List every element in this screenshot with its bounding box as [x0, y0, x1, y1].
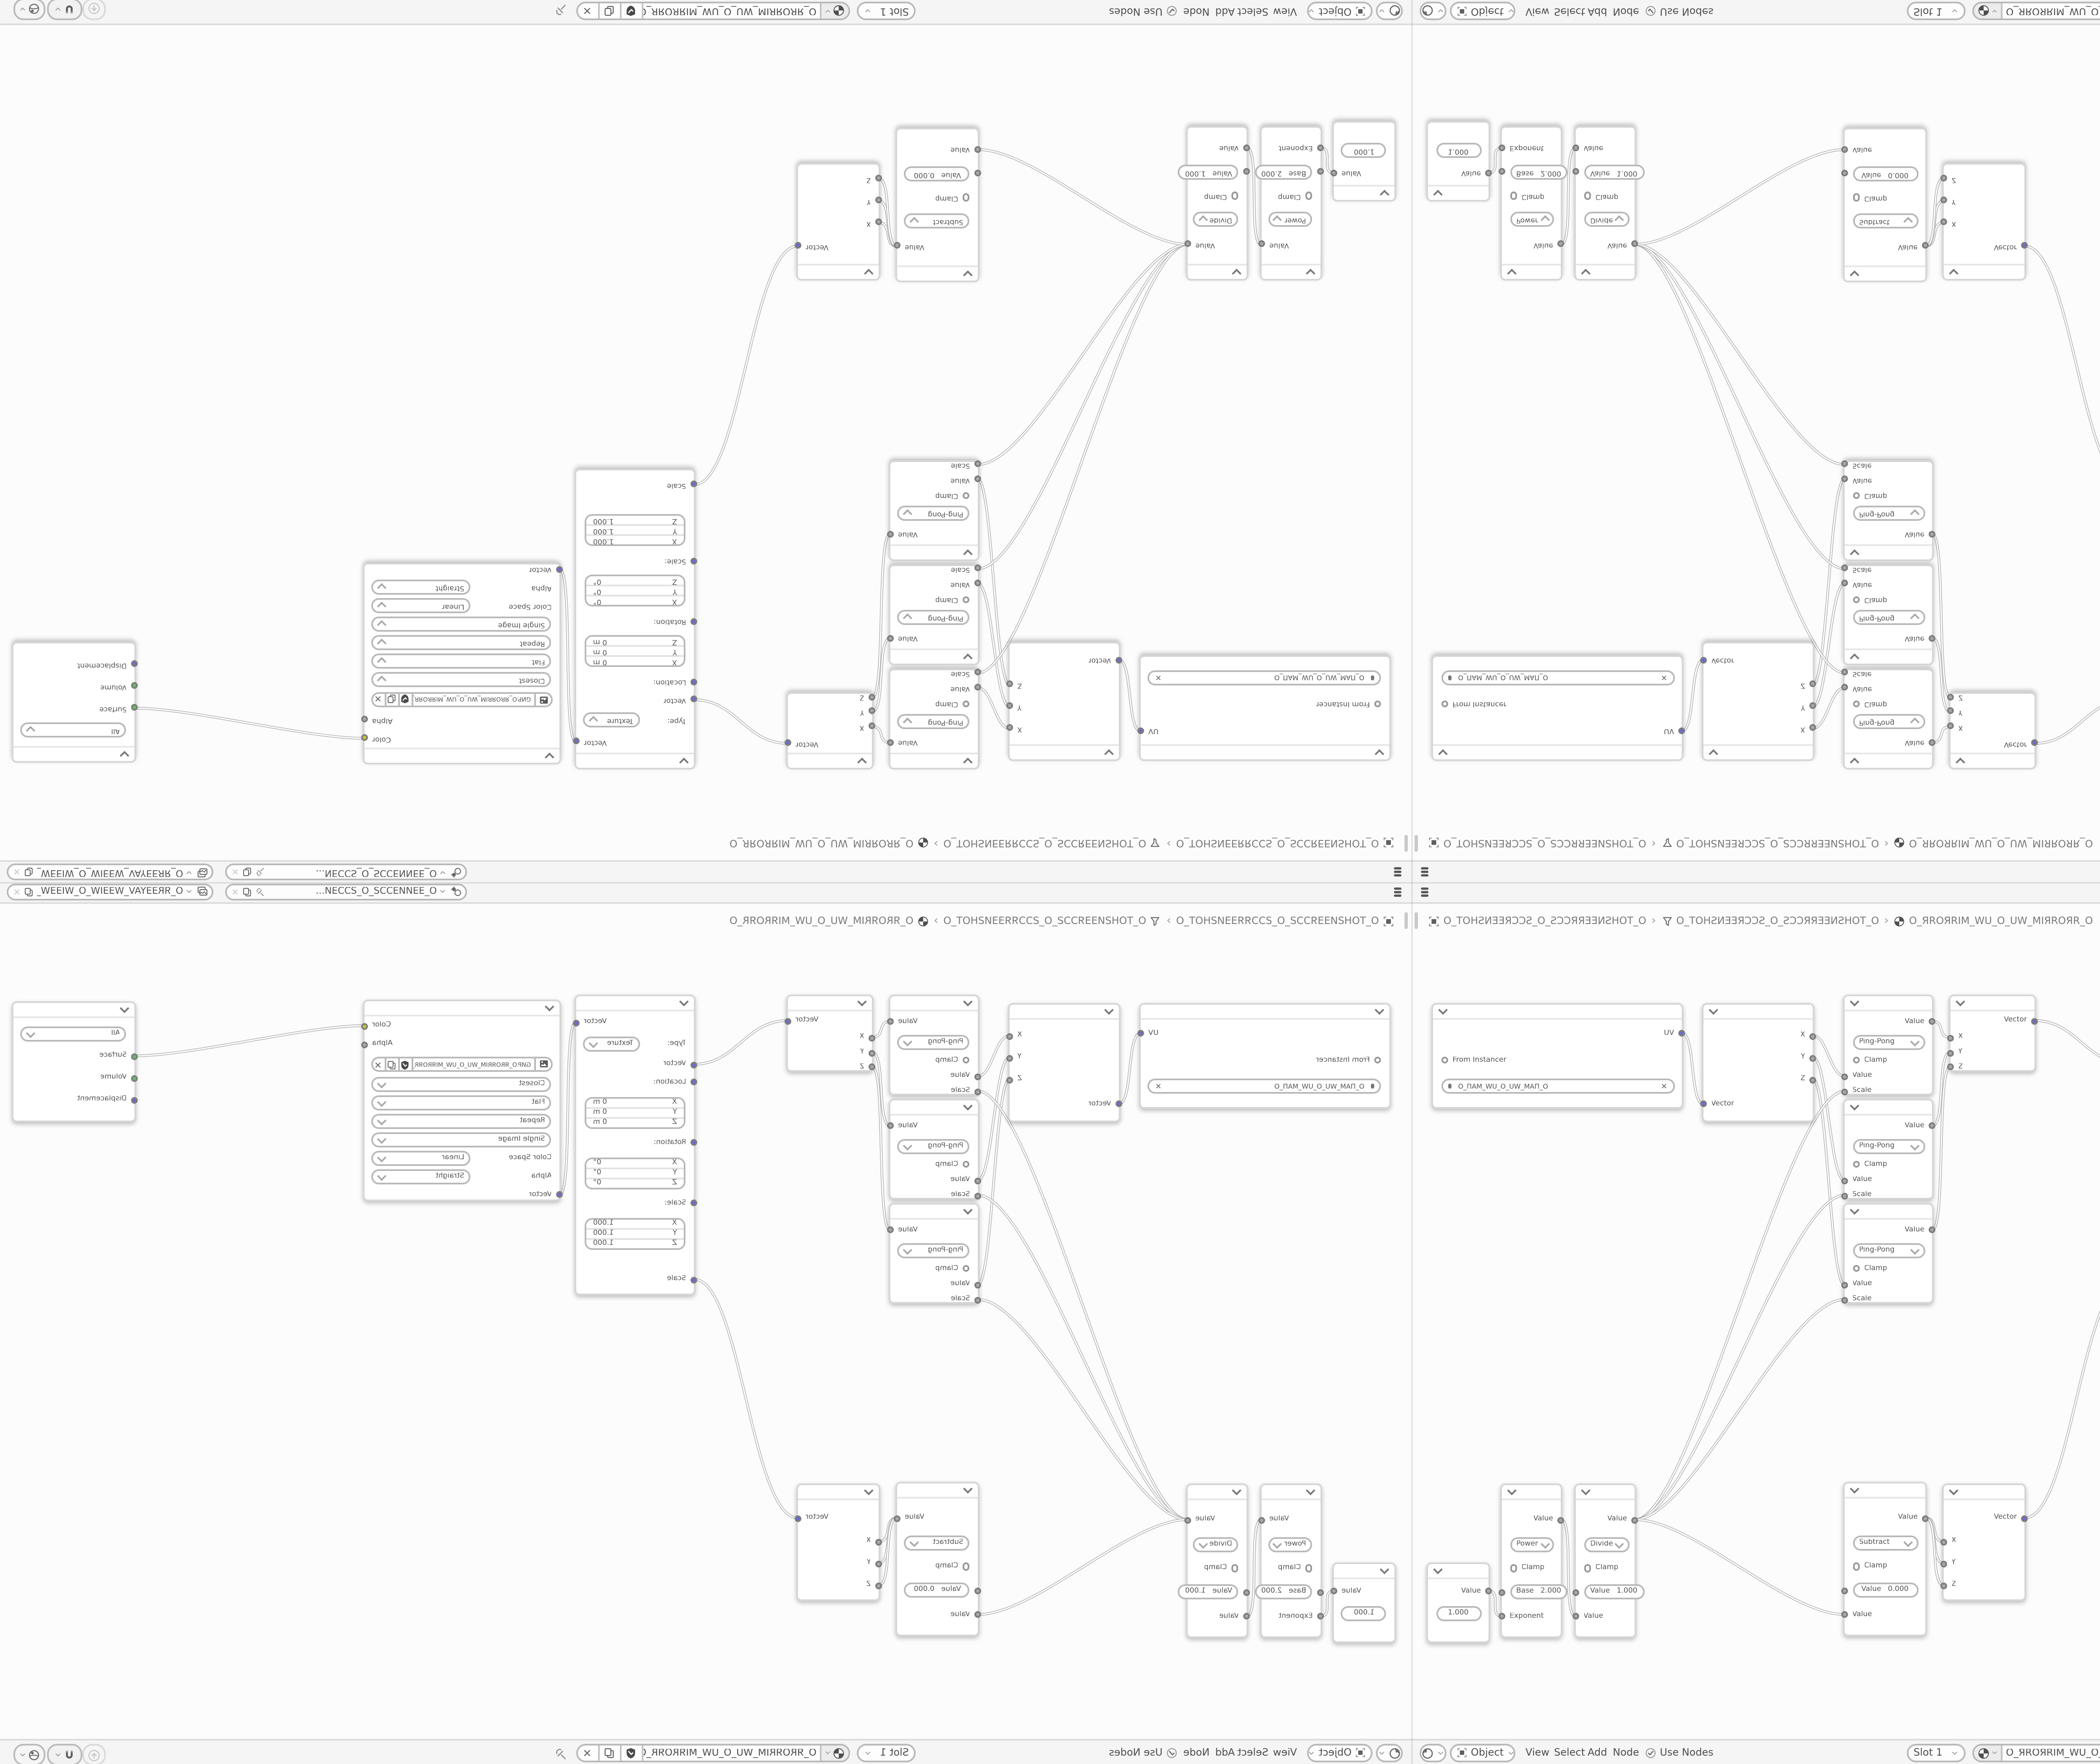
checkbox[interactable] — [1305, 1564, 1313, 1572]
node-pp3[interactable]: ValuePing-PongClampValueScale — [1843, 1203, 1934, 1304]
pow-exp-socket[interactable] — [1498, 144, 1505, 151]
vector-field-row[interactable]: X0 m — [586, 658, 684, 666]
x-icon[interactable] — [1659, 674, 1667, 682]
collapse-chevron-icon[interactable] — [1104, 748, 1114, 759]
vector-field-row[interactable]: Z0 m — [586, 1116, 684, 1126]
value-field[interactable]: Base2.000 — [1509, 165, 1568, 180]
node-header[interactable] — [1262, 1485, 1320, 1500]
breadcrumb-item[interactable]: O_TOHƧИƎƎЯƆƆƧ_O_ƧƆƆЯЯƎƎИƧHOT_O — [1661, 915, 1879, 927]
node-pp3[interactable]: ValuePing-PongClampValueScale — [889, 460, 979, 561]
dropdown[interactable]: Repeat — [372, 635, 552, 650]
use-nodes-toggle[interactable]: Use Nodes — [1109, 1740, 1178, 1764]
node-div[interactable]: ValueDivideClampValue1.000Value — [1186, 1483, 1248, 1638]
x-icon[interactable] — [1155, 674, 1163, 682]
node-out[interactable]: AllSurfaceVolumeDisplacement — [12, 1001, 136, 1122]
dropdown[interactable]: Ping-Pong — [1852, 715, 1924, 730]
node-header[interactable] — [1141, 744, 1389, 759]
image-name-field[interactable]: GИP.O_ЯROЯRIM_WU_O_UW_MIЯROЯR_O.PNG — [412, 1056, 534, 1072]
collapse-chevron-icon[interactable] — [963, 549, 973, 559]
checkbox[interactable] — [1852, 700, 1860, 708]
editor-type-button[interactable] — [1376, 2, 1403, 20]
pp1-out-socket[interactable] — [887, 1018, 893, 1025]
uvmap-uv-socket[interactable] — [1137, 1030, 1144, 1037]
chevron-down-icon[interactable] — [439, 868, 448, 877]
node-header[interactable] — [365, 1001, 559, 1016]
value-field[interactable]: Value0.000 — [1852, 1583, 1918, 1598]
breadcrumb-item[interactable]: O_ЯROЯRIM_WU_O_UW_MIЯROЯR_O — [1894, 837, 2093, 849]
val-out-socket[interactable] — [1330, 170, 1337, 176]
collapse-chevron-icon[interactable] — [1849, 549, 1860, 559]
shading-type-dropdown[interactable]: Object — [1450, 1744, 1515, 1762]
collapse-chevron-icon[interactable] — [1849, 757, 1860, 767]
image-datablock-icon-button[interactable] — [534, 692, 553, 708]
dropdown[interactable]: Divide — [1193, 1537, 1239, 1552]
collapse-chevron-icon[interactable] — [1379, 189, 1390, 199]
collapse-chevron-icon[interactable] — [857, 757, 867, 767]
collapse-chevron-icon[interactable] — [963, 270, 973, 280]
node-map[interactable]: VectorType:TextureVectorLocation:X0 mY0 … — [575, 469, 696, 769]
collapse-chevron-icon[interactable] — [963, 1101, 973, 1111]
breadcrumb-item[interactable]: O_ЯROЯRIM_WU_O_UW_MIЯROЯR_O — [730, 837, 929, 849]
node-img[interactable]: ColorAlphaGИP.O_ЯROЯRIM_WU_O_UW_MIЯROЯR_… — [363, 563, 561, 764]
value-field[interactable]: 1.000 — [1436, 1606, 1481, 1621]
dropdown[interactable]: Ping-Pong — [1852, 1138, 1924, 1153]
node-pp3[interactable]: ValuePing-PongClampValueScale — [889, 1203, 979, 1304]
uv-map-field[interactable]: O_ПAM_WU_O_UW_MAП_O — [1148, 670, 1382, 685]
node-header[interactable] — [1845, 753, 1932, 768]
material-slot-dropdown[interactable]: Slot 1 — [1907, 1744, 1966, 1762]
node-c2[interactable]: VectorXYZ — [796, 163, 880, 281]
vector-field-stack[interactable]: X0 mY0 mZ0 m — [585, 636, 685, 668]
breadcrumb-item[interactable]: O_TOHƧИƎƎЯƆƆƧ_O_ƧƆƆЯЯƎƎИƧHOT_O — [1428, 837, 1646, 849]
collapse-chevron-icon[interactable] — [1849, 1101, 1860, 1111]
node-header[interactable] — [1576, 264, 1635, 279]
sep-vector-socket[interactable] — [1700, 657, 1706, 664]
node-header[interactable] — [1334, 1564, 1394, 1579]
overlays-button[interactable] — [13, 1744, 45, 1764]
collapse-chevron-icon[interactable] — [1433, 1564, 1443, 1575]
image-name-field[interactable]: GИP.O_ЯROЯRIM_WU_O_UW_MIЯROЯR_O.PNG — [412, 692, 534, 708]
node-header[interactable] — [890, 1100, 978, 1116]
collapse-chevron-icon[interactable] — [1849, 653, 1860, 663]
node-header[interactable] — [1433, 744, 1682, 759]
dropdown[interactable]: Ping-Pong — [898, 611, 970, 626]
collapse-chevron-icon[interactable] — [544, 1002, 555, 1012]
dropdown[interactable]: Subtract — [1852, 213, 1918, 228]
dropdown[interactable]: Ping-Pong — [898, 507, 970, 522]
x-icon[interactable] — [1155, 1082, 1163, 1090]
breadcrumb-item[interactable]: O_ЯROЯRIM_WU_O_UW_MIЯROЯR_O — [730, 915, 929, 927]
node-header[interactable] — [890, 544, 978, 559]
node-c2[interactable]: VectorXYZ — [1942, 163, 2026, 281]
node-pp1[interactable]: ValuePing-PongClampValueScale — [1843, 995, 1934, 1095]
node-header[interactable] — [788, 753, 872, 768]
scene-selector[interactable]: O_ƎƎИИƎƆƆƧ_O_ƧƆƆƎИ... — [225, 864, 467, 880]
image-fake-user-button[interactable] — [398, 1056, 412, 1072]
vector-field-row[interactable]: Z0° — [586, 577, 684, 587]
dropdown[interactable]: Ping-Pong — [1852, 507, 1924, 522]
menu-view[interactable]: View — [1525, 1740, 1549, 1764]
collapse-chevron-icon[interactable] — [963, 997, 973, 1007]
dropdown[interactable]: Divide — [1193, 212, 1239, 227]
checkbox[interactable] — [963, 194, 970, 201]
checkbox[interactable] — [1509, 1564, 1517, 1572]
collapse-chevron-icon[interactable] — [1231, 268, 1242, 278]
collapse-chevron-icon[interactable] — [1849, 997, 1860, 1007]
node-header[interactable] — [576, 753, 694, 768]
checkbox[interactable] — [963, 700, 970, 708]
node-sep[interactable]: XYZVector — [1008, 642, 1121, 761]
checkbox[interactable] — [1441, 1056, 1448, 1064]
material-sphere-icon[interactable] — [1974, 1744, 2003, 1762]
material-copy-button[interactable] — [600, 2, 622, 20]
x-icon[interactable] — [12, 867, 22, 877]
collapse-chevron-icon[interactable] — [1438, 1005, 1448, 1016]
collapse-chevron-icon[interactable] — [1374, 748, 1385, 759]
pp2-out-socket[interactable] — [887, 635, 893, 642]
material-slot-dropdown[interactable]: Slot 1 — [857, 2, 916, 20]
collapse-chevron-icon[interactable] — [963, 653, 973, 663]
collapse-chevron-icon[interactable] — [963, 1205, 973, 1215]
node-editor-canvas[interactable]: O_TOHƧИƎƎЯƆƆƧ_O_ƧƆƆЯЯƎƎИƧHOT_O›O_TOHƧИƎƎ… — [0, 25, 1411, 862]
value-field[interactable]: 1.000 — [1341, 1606, 1387, 1621]
value-field[interactable]: Base2.000 — [1509, 1584, 1568, 1599]
node-header[interactable] — [1704, 744, 1813, 759]
checkbox[interactable] — [1583, 1564, 1591, 1572]
menu-view[interactable]: View — [1273, 1740, 1297, 1764]
collapse-chevron-icon[interactable] — [1374, 1005, 1385, 1016]
node-header[interactable] — [1845, 1100, 1932, 1116]
topbar-menu-button[interactable] — [1420, 864, 1435, 879]
vector-field-stack[interactable]: X1.000Y1.000Z1.000 — [585, 515, 685, 547]
node-val[interactable]: Value1.000 — [1426, 121, 1490, 202]
node-header[interactable] — [1433, 1005, 1682, 1020]
node-header[interactable] — [1704, 1005, 1813, 1020]
uv-map-field[interactable]: O_ПAM_WU_O_UW_MAП_O — [1148, 1079, 1382, 1094]
menu-add[interactable]: Add — [1588, 1740, 1607, 1764]
dropdown[interactable]: Straight — [372, 580, 471, 594]
node-out[interactable]: AllSurfaceVolumeDisplacement — [12, 642, 136, 763]
dropdown[interactable]: Subtract — [905, 1536, 970, 1551]
shading-type-dropdown[interactable]: Object — [1450, 2, 1515, 20]
image-unlink-button[interactable] — [371, 692, 385, 708]
checkbox[interactable] — [1374, 700, 1382, 708]
collapse-chevron-icon[interactable] — [1849, 1205, 1860, 1215]
node-img[interactable]: ColorAlphaGИP.O_ЯROЯRIM_WU_O_UW_MIЯROЯR_… — [363, 1000, 561, 1201]
vector-field-stack[interactable]: X0°Y0°Z0° — [585, 1157, 685, 1189]
node-sub[interactable]: ValueSubtractClampValue0.000Value — [895, 1482, 979, 1636]
vector-field-row[interactable]: X1.000 — [586, 1219, 684, 1227]
copy-icon[interactable] — [243, 867, 253, 877]
menu-node[interactable]: Node — [1613, 0, 1639, 24]
vector-field-row[interactable]: Y1.000 — [586, 527, 684, 537]
breadcrumb-item[interactable]: O_TOHƧИƎƎЯƆƆƧ_O_ƧƆƆЯЯƎƎИƧHOT_O — [1428, 915, 1646, 927]
node-header[interactable] — [1188, 1485, 1247, 1500]
editor-type-button[interactable] — [1376, 1744, 1403, 1762]
menu-node[interactable]: Node — [1183, 1740, 1210, 1764]
image-fake-user-button[interactable] — [398, 692, 412, 708]
node-c1[interactable]: VectorXYZ — [786, 995, 874, 1072]
pp1-out-socket[interactable] — [887, 739, 893, 746]
breadcrumb-item[interactable]: O_TOHƧИƎƎЯƆƆƧ_O_ƧƆƆЯЯƎƎИƧHOT_O — [1176, 837, 1394, 849]
use-nodes-toggle[interactable]: Use Nodes — [1645, 0, 1714, 24]
collapse-chevron-icon[interactable] — [544, 752, 555, 762]
vector-field-row[interactable]: Z1.000 — [586, 517, 684, 527]
checkbox[interactable] — [1852, 1265, 1860, 1272]
node-header[interactable] — [1334, 185, 1394, 200]
node-sep[interactable]: XYZVector — [1008, 1003, 1121, 1122]
node-header[interactable] — [1944, 264, 2024, 279]
node-header[interactable] — [1576, 1485, 1635, 1500]
dropdown[interactable]: Texture — [584, 1037, 640, 1052]
div-value-socket[interactable] — [1572, 1613, 1579, 1620]
material-datablock-selector[interactable]: O_ЯROЯRIM_WU_O_UW_MIЯROЯR_O — [576, 1744, 850, 1762]
dropdown[interactable]: Subtract — [905, 213, 970, 228]
dropdown[interactable]: Ping-Pong — [898, 1242, 970, 1257]
material-fake-user-button[interactable] — [622, 2, 643, 20]
checkbox[interactable] — [963, 492, 970, 499]
node-header[interactable] — [890, 648, 978, 664]
value-field[interactable]: 1.000 — [1341, 143, 1387, 158]
snapping-button[interactable] — [47, 0, 82, 20]
vector-field-row[interactable]: Z0° — [586, 1177, 684, 1187]
image-datablock-icon-button[interactable] — [534, 1056, 553, 1072]
c1-z-socket[interactable] — [1947, 694, 1953, 701]
collapse-chevron-icon[interactable] — [857, 997, 867, 1007]
collapse-chevron-icon[interactable] — [963, 757, 973, 767]
checkbox[interactable] — [963, 1056, 970, 1064]
collapse-chevron-icon[interactable] — [1849, 1484, 1860, 1494]
use-nodes-toggle[interactable]: Use Nodes — [1109, 0, 1178, 24]
node-uvmap[interactable]: UVFrom InstancerO_ПAM_WU_O_UW_MAП_O — [1139, 655, 1391, 761]
dropdown[interactable]: Power — [1509, 1537, 1554, 1552]
node-sep[interactable]: XYZVector — [1702, 1003, 1814, 1122]
collapse-chevron-icon[interactable] — [679, 997, 689, 1007]
material-sphere-icon[interactable] — [1974, 2, 2003, 20]
dropdown[interactable]: Ping-Pong — [1852, 1034, 1924, 1049]
pin-icon[interactable] — [255, 867, 265, 877]
node-header[interactable] — [13, 1003, 134, 1018]
checkbox[interactable] — [963, 596, 970, 604]
editor-corner-handle[interactable] — [1404, 912, 1408, 929]
view-layer-selector[interactable]: O_ЯRƎƎYAV_WƎƎIW_O_WIƎƎW_VAYƎƎЯR_O — [7, 864, 213, 880]
menu-add[interactable]: Add — [1588, 0, 1607, 24]
node-pp2[interactable]: ValuePing-PongClampValueScale — [889, 1099, 979, 1200]
breadcrumb-item[interactable]: O_TOHƧИƎƎЯƆƆƧ_O_ƧƆƆЯЯƎƎИƧHOT_O — [943, 837, 1161, 849]
topbar-menu-button[interactable] — [1388, 864, 1403, 879]
dropdown[interactable]: Power — [1509, 212, 1554, 227]
dropdown[interactable]: Linear — [372, 1151, 471, 1165]
material-datablock-selector[interactable]: O_ЯROЯRIM_WU_O_UW_MIЯROЯR_O — [1972, 2, 2100, 20]
node-pow[interactable]: ValuePowerClampBase2.000Exponent — [1500, 1483, 1562, 1638]
value-field[interactable]: Value1.000 — [1179, 1584, 1239, 1599]
node-header[interactable] — [798, 264, 879, 279]
vector-field-row[interactable]: Y0° — [586, 587, 684, 597]
node-pow[interactable]: ValuePowerClampBase2.000Exponent — [1260, 1483, 1322, 1638]
vector-field-row[interactable]: Y0 m — [586, 1106, 684, 1116]
snapping-button[interactable] — [47, 1744, 82, 1764]
collapse-chevron-icon[interactable] — [1104, 1005, 1114, 1016]
checkbox[interactable] — [963, 1160, 970, 1168]
collapse-chevron-icon[interactable] — [864, 268, 874, 278]
checkbox[interactable] — [1852, 596, 1860, 604]
node-pow[interactable]: ValuePowerClampBase2.000Exponent — [1260, 126, 1322, 281]
dropdown[interactable]: Repeat — [372, 1114, 552, 1129]
pin-id-button[interactable] — [554, 1740, 568, 1764]
vector-field-stack[interactable]: X0 mY0 mZ0 m — [585, 1096, 685, 1128]
node-pp3[interactable]: ValuePing-PongClampValueScale — [1843, 460, 1934, 561]
chevron-down-icon[interactable] — [186, 868, 194, 877]
menu-select[interactable]: Select — [1237, 1740, 1268, 1764]
collapse-chevron-icon[interactable] — [1379, 1564, 1390, 1575]
editor-corner-handle[interactable] — [1415, 912, 1418, 929]
vector-field-stack[interactable]: X1.000Y1.000Z1.000 — [585, 1217, 685, 1249]
value-field[interactable]: Value1.000 — [1179, 165, 1239, 180]
node-val[interactable]: Value1.000 — [1332, 1562, 1396, 1643]
node-pp2[interactable]: ValuePing-PongClampValueScale — [1843, 1099, 1934, 1200]
collapse-chevron-icon[interactable] — [1231, 1486, 1242, 1496]
checkbox[interactable] — [1852, 1056, 1860, 1064]
dropdown[interactable]: Straight — [372, 1169, 471, 1184]
collapse-chevron-icon[interactable] — [1580, 268, 1591, 278]
dropdown[interactable]: All — [21, 1026, 127, 1041]
node-header[interactable] — [1950, 996, 2034, 1011]
menu-add[interactable]: Add — [1215, 1740, 1235, 1764]
overlays-button[interactable] — [13, 0, 45, 20]
node-header[interactable] — [13, 746, 134, 761]
pin-id-button[interactable] — [554, 0, 568, 24]
node-c1[interactable]: VectorXYZ — [1949, 692, 2036, 769]
dropdown[interactable]: Closest — [372, 1077, 552, 1092]
dropdown[interactable]: Ping-Pong — [1852, 1242, 1924, 1257]
uv-map-field[interactable]: O_ПAM_WU_O_UW_MAП_O — [1441, 1079, 1674, 1094]
node-header[interactable] — [365, 748, 559, 763]
node-val[interactable]: Value1.000 — [1426, 1562, 1490, 1643]
node-header[interactable] — [576, 996, 694, 1011]
node-pow[interactable]: ValuePowerClampBase2.000Exponent — [1500, 126, 1562, 281]
material-slot-dropdown[interactable]: Slot 1 — [857, 1744, 916, 1762]
sub-value-socket[interactable] — [1841, 1611, 1848, 1618]
node-pp1[interactable]: ValuePing-PongClampValueScale — [889, 669, 979, 769]
collapse-chevron-icon[interactable] — [1580, 1486, 1591, 1496]
node-div[interactable]: ValueDivideClampValue1.000Value — [1574, 1483, 1636, 1638]
node-sub[interactable]: ValueSubtractClampValue0.000Value — [1843, 128, 1927, 282]
node-header[interactable] — [798, 1485, 879, 1500]
material-unlink-button[interactable] — [578, 2, 600, 20]
checkbox[interactable] — [1852, 1160, 1860, 1168]
vector-field-row[interactable]: X0 m — [586, 1098, 684, 1106]
dropdown[interactable]: Linear — [372, 598, 471, 613]
pp3-out-socket[interactable] — [887, 1226, 893, 1233]
collapse-chevron-icon[interactable] — [119, 750, 130, 761]
node-header[interactable] — [890, 753, 978, 768]
node-pp1[interactable]: ValuePing-PongClampValueScale — [1843, 669, 1934, 769]
val-out-socket[interactable] — [1330, 1588, 1337, 1594]
node-c2[interactable]: VectorXYZ — [796, 1483, 880, 1601]
node-map[interactable]: VectorType:TextureVectorLocation:X0 mY0 … — [575, 995, 696, 1295]
node-sub[interactable]: ValueSubtractClampValue0.000Value — [895, 128, 979, 282]
vector-field-row[interactable]: Z0 m — [586, 638, 684, 648]
use-nodes-toggle[interactable]: Use Nodes — [1645, 1740, 1714, 1764]
c1-z-socket[interactable] — [1947, 1063, 1953, 1070]
checkbox[interactable] — [1231, 192, 1239, 199]
editor-type-button[interactable] — [1420, 2, 1446, 20]
node-header[interactable] — [1845, 1205, 1932, 1220]
collapse-chevron-icon[interactable] — [1849, 270, 1860, 280]
menu-select[interactable]: Select — [1554, 0, 1585, 24]
checkbox[interactable] — [963, 1265, 970, 1272]
node-uvmap[interactable]: UVFrom InstancerO_ПAM_WU_O_UW_MAП_O — [1431, 1003, 1683, 1109]
material-fake-user-button[interactable] — [622, 1744, 643, 1762]
vector-field-row[interactable]: Z1.000 — [586, 1237, 684, 1247]
chevron-down-icon[interactable] — [186, 888, 194, 896]
checkbox[interactable] — [1305, 192, 1313, 199]
material-datablock-selector[interactable]: O_ЯROЯRIM_WU_O_UW_MIЯROЯR_O — [576, 2, 850, 20]
dropdown[interactable]: Flat — [372, 654, 552, 668]
value-field[interactable]: Base2.000 — [1255, 1584, 1313, 1599]
copy-icon[interactable] — [24, 887, 34, 897]
menu-node[interactable]: Node — [1183, 0, 1210, 24]
vector-field-row[interactable]: Y0 m — [586, 648, 684, 658]
node-header[interactable] — [1845, 265, 1925, 281]
node-sep[interactable]: XYZVector — [1702, 642, 1814, 761]
collapse-chevron-icon[interactable] — [1438, 748, 1448, 759]
breadcrumb-item[interactable]: O_TOHƧИƎƎЯƆƆƧ_O_ƧƆƆЯЯƎƎИƧHOT_O — [1661, 837, 1879, 849]
dropdown[interactable]: Ping-Pong — [898, 1138, 970, 1153]
pow-exp-socket[interactable] — [1498, 1613, 1505, 1620]
material-sphere-icon[interactable] — [820, 2, 848, 20]
node-pp2[interactable]: ValuePing-PongClampValueScale — [1843, 564, 1934, 665]
dropdown[interactable]: Single Image — [372, 617, 552, 631]
collapse-chevron-icon[interactable] — [1305, 1486, 1316, 1496]
collapse-chevron-icon[interactable] — [1955, 997, 1966, 1007]
collapse-chevron-icon[interactable] — [864, 1486, 874, 1496]
menu-select[interactable]: Select — [1237, 0, 1268, 24]
checkbox[interactable] — [1374, 1056, 1382, 1064]
node-header[interactable] — [788, 996, 872, 1011]
value-field[interactable]: Value0.000 — [905, 1583, 970, 1598]
node-header[interactable] — [1845, 544, 1932, 559]
value-field[interactable]: 1.000 — [1436, 143, 1481, 158]
topbar-menu-button[interactable] — [1420, 885, 1435, 900]
value-field[interactable]: Value1.000 — [1583, 165, 1644, 180]
node-header[interactable] — [1944, 1485, 2024, 1500]
breadcrumb-item[interactable]: O_TOHƧИƎƎЯƆƆƧ_O_ƧƆƆЯЯƎƎИƧHOT_O — [1176, 915, 1394, 927]
node-header[interactable] — [1950, 753, 2034, 768]
node-header[interactable] — [1502, 264, 1561, 279]
dropdown[interactable]: Ping-Pong — [1852, 611, 1924, 626]
node-pp2[interactable]: ValuePing-PongClampValueScale — [889, 564, 979, 665]
checkbox[interactable] — [1583, 192, 1591, 199]
collapse-chevron-icon[interactable] — [1708, 1005, 1719, 1016]
breadcrumb-item[interactable]: O_TOHƧИƎƎЯƆƆƧ_O_ƧƆƆЯЯƎƎИƧHOT_O — [943, 915, 1161, 927]
collapse-chevron-icon[interactable] — [1433, 189, 1443, 199]
dropdown[interactable]: Subtract — [1852, 1536, 1918, 1551]
node-c1[interactable]: VectorXYZ — [786, 692, 874, 769]
collapse-chevron-icon[interactable] — [1507, 1486, 1517, 1496]
vector-field-stack[interactable]: X0°Y0°Z0° — [585, 575, 685, 607]
dropdown[interactable]: All — [21, 723, 127, 738]
sub-value-socket[interactable] — [1841, 146, 1848, 153]
node-editor-canvas[interactable]: O_TOHƧИƎƎЯƆƆƧ_O_ƧƆƆЯЯƎƎИƧHOT_O›O_TOHƧИƎƎ… — [0, 902, 1411, 1739]
node-sub[interactable]: ValueSubtractClampValue0.000Value — [1843, 1482, 1927, 1636]
image-copy-button[interactable] — [385, 692, 398, 708]
vector-field-row[interactable]: Y1.000 — [586, 1227, 684, 1237]
copy-icon[interactable] — [243, 887, 253, 897]
pp2-out-socket[interactable] — [887, 1122, 893, 1129]
view-layer-selector[interactable]: O_ЯRƎƎYAV_WƎƎIW_O_WIƎƎW_VAYƎƎЯR_O — [7, 884, 213, 900]
gizmo-toggle-button[interactable] — [82, 1744, 106, 1764]
